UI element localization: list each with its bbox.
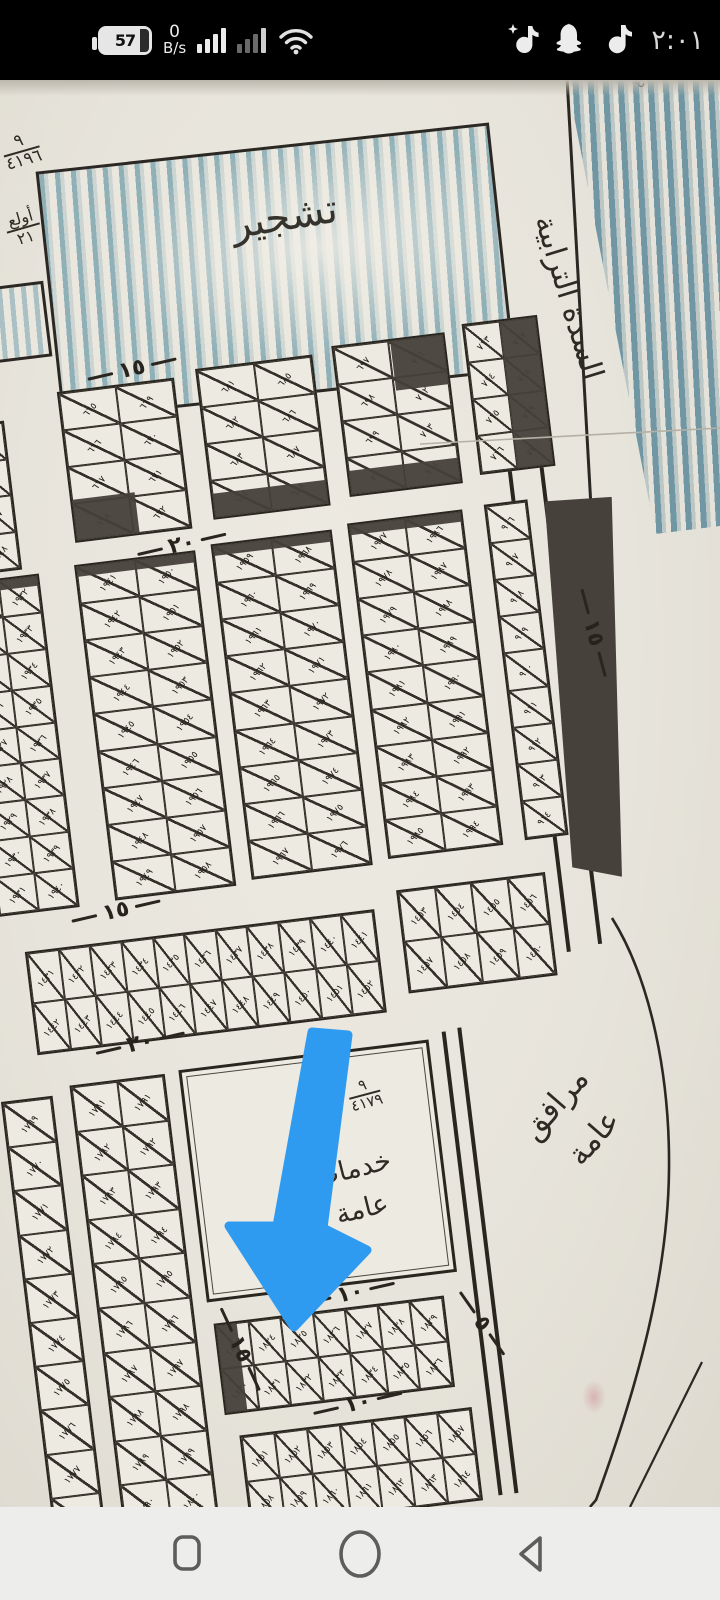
wifi-icon bbox=[277, 25, 315, 55]
plot-number: ١٩٥٩ bbox=[234, 551, 256, 574]
plot-cell: ١٤٦٠ bbox=[513, 924, 555, 978]
plot-cell: ١٧٧٠ bbox=[9, 1142, 62, 1192]
plot-cell: ١٩٣١ bbox=[0, 873, 39, 914]
plot-number: ٦٨٥ bbox=[275, 371, 293, 390]
plot-number: ٧١٦ bbox=[488, 444, 506, 463]
plot-number: ١٨٢٤ bbox=[256, 1332, 278, 1355]
plot-number: ١٧٨٢ bbox=[92, 1141, 114, 1164]
plot-number: ١٤٣٢ bbox=[67, 963, 89, 986]
plot-cell: ٩١٢ bbox=[513, 723, 557, 765]
plot-number: ١٤٥٤ bbox=[445, 901, 467, 924]
plot-number: ١٩٥١ bbox=[160, 601, 182, 624]
plot-number: ٦٨١ bbox=[219, 378, 237, 397]
plot-number: ١٩٨٦ bbox=[424, 524, 446, 547]
public-facilities-label: مرافق عامة bbox=[509, 1057, 641, 1187]
plot-number: ١٩٥٣ bbox=[169, 675, 191, 698]
plot-number: ١٤٥٢ bbox=[355, 978, 377, 1001]
plot-cell: ١٧٧١ bbox=[14, 1186, 67, 1236]
plot-number: ٦٦٧ bbox=[90, 474, 108, 493]
plot-cell: ١٨٥١ bbox=[242, 1433, 280, 1482]
plot-number: ١٧٨٤ bbox=[103, 1230, 125, 1253]
plot-number: ١٩٤٨ bbox=[129, 830, 151, 853]
plot-number: ١٩٧٨ bbox=[373, 567, 395, 590]
plot-number: ١٨٥٨ bbox=[255, 1493, 277, 1507]
dunam-note: أولع٢١ دونم٦ bbox=[0, 205, 44, 263]
plot-number: ١٨٢٦ bbox=[321, 1324, 343, 1347]
plot-number: ١٩٢٦ bbox=[0, 701, 6, 724]
plot-number: ١٩٤١ bbox=[97, 572, 119, 595]
battery-percent: 57 bbox=[115, 31, 135, 50]
plot-number: ٦٩٩ bbox=[363, 428, 381, 447]
plot-number: ٧١٣ bbox=[475, 334, 493, 353]
plot-cell: ١٧٧٤ bbox=[30, 1317, 83, 1367]
plot-number: ١٩٤٥ bbox=[115, 719, 137, 742]
plot-cell: ٩٠٦ bbox=[486, 502, 530, 544]
plot-block: ٦٦٥٦٦٩٦٦٦٦٧٠٦٦٧٦٧١٦٦٨٦٧٢ bbox=[57, 378, 193, 543]
street-dash bbox=[200, 532, 226, 541]
plot-block: ١٩٤١١٩٥٠١٩٤٢١٩٥١١٩٤٣١٩٥٢١٩٤٤١٩٥٣١٩٤٥١٩٥٤… bbox=[74, 550, 236, 900]
plot-cell: ١٧٨٣ bbox=[83, 1170, 134, 1220]
plot-number: ٦٨٧ bbox=[284, 444, 302, 463]
plot-number: ٦٦٥ bbox=[81, 401, 99, 420]
dark-filled-area bbox=[390, 335, 449, 391]
plot-cell: ١٩٩٤ bbox=[441, 806, 501, 850]
plot-number: ١٨٥٤ bbox=[348, 1436, 370, 1459]
plot-cell: ١٨٥٥ bbox=[372, 1417, 410, 1466]
plot-number: ١٩٧٤ bbox=[319, 765, 341, 788]
plot-number: ١٧٧٦ bbox=[57, 1420, 79, 1443]
plot-cell: ٩١٣ bbox=[518, 759, 562, 801]
battery-level-fill bbox=[140, 29, 149, 52]
plot-number: ١٩٣٣ bbox=[14, 623, 36, 646]
plot-number: ٧١٤ bbox=[479, 371, 497, 390]
street-width-value: ١٠ bbox=[334, 1278, 366, 1308]
street-dash bbox=[313, 1406, 339, 1415]
plot-number: ٦٧١ bbox=[146, 467, 164, 486]
plot-number: ١٤٥٠ bbox=[292, 986, 314, 1009]
plot-number: ٧٠٣ bbox=[418, 422, 436, 441]
plot-number: ١٨٣٤ bbox=[359, 1364, 381, 1387]
map-drawing-tilted: تشجير ٩ ٤١٩٦ مـ أولع٢١ دونم٦ ٤٤٢ السدة ا… bbox=[0, 80, 720, 1507]
plot-cell: ١٧٨٢ bbox=[77, 1126, 128, 1176]
plot-number: ٩١٠ bbox=[517, 662, 535, 681]
plot-cell: ١٩٣٥ bbox=[12, 686, 55, 727]
plot-number: ١٩٨٨ bbox=[433, 597, 455, 620]
plot-number: ١٩٦٢ bbox=[247, 661, 269, 684]
plot-number: ١٩٤٣ bbox=[106, 645, 128, 668]
plot-number: ١٩٢٧ bbox=[0, 738, 10, 761]
plot-number: ١٤٤١ bbox=[349, 929, 371, 952]
plot-number: ١٧٩٧ bbox=[165, 1357, 187, 1380]
plot-cell: ٩٠٧ bbox=[490, 538, 534, 580]
plot-number: ١٨٣٥ bbox=[391, 1360, 413, 1383]
phone-screen: 57 0 B/s bbox=[0, 0, 720, 1600]
plot-cell: ١٤٥٧ bbox=[404, 937, 446, 991]
plot-cell: ١٨٢٥ bbox=[280, 1314, 318, 1362]
plot-number: ١٧٩٥ bbox=[154, 1268, 176, 1291]
plot-cell: ١٧٧٦ bbox=[41, 1405, 94, 1455]
plot-cell: ١٧٩٤ bbox=[134, 1209, 185, 1259]
plot-number: ١٧٨١ bbox=[87, 1097, 109, 1120]
plot-cell: ١٤٤١ bbox=[341, 911, 378, 964]
plot-number: ١٧٨٩ bbox=[130, 1451, 152, 1474]
plot-number: ١٤٥١ bbox=[324, 982, 346, 1005]
street-width-value: ٢٠ bbox=[124, 1028, 156, 1058]
plot-number: ١٩٧٢ bbox=[310, 691, 332, 714]
plot-cell: ١٨٠٠ bbox=[166, 1475, 217, 1507]
plot-number: ١٨٥٦ bbox=[413, 1428, 435, 1451]
plot-cell: ١٩٣٧ bbox=[21, 759, 64, 800]
plot-cell: ١٧٧٢ bbox=[19, 1230, 72, 1280]
plot-number: ٦٧٠ bbox=[142, 430, 160, 449]
plot-number: ١٤٥٧ bbox=[415, 955, 437, 978]
plot-number: ١٩٧٥ bbox=[324, 802, 346, 825]
street-dash bbox=[369, 1281, 395, 1290]
plot-cell: ١٧٧٣ bbox=[25, 1273, 78, 1323]
plot-number: ٩٠٨ bbox=[508, 588, 526, 607]
street-dash bbox=[159, 1031, 185, 1040]
street-width-value: ١٥ bbox=[100, 896, 132, 926]
plot-cell: ١٧٩٧ bbox=[150, 1342, 201, 1392]
street-dash bbox=[96, 1046, 122, 1055]
plot-number: ١٩٣٥ bbox=[23, 696, 45, 719]
plot-number: ١٩٣١ bbox=[7, 884, 29, 907]
plot-cell: ١٧٩١ bbox=[117, 1076, 168, 1126]
street-dash bbox=[247, 1366, 261, 1391]
plot-cell: ١٤٥٣ bbox=[398, 888, 440, 942]
plot-cell: ١٩٧٦ bbox=[307, 826, 370, 870]
plot-cell: ١٩٣٩ bbox=[30, 832, 73, 873]
plot-number: ١٩٩١ bbox=[447, 708, 469, 731]
plot-cell: ١٧٨٩ bbox=[115, 1436, 166, 1486]
plot-number: ١٩٦٩ bbox=[297, 581, 319, 604]
plot-number: ١٩٨١ bbox=[387, 678, 409, 701]
plot-number: ١٩٩٢ bbox=[451, 745, 473, 768]
plot-number: ١٨٦٠ bbox=[321, 1485, 343, 1507]
plot-number: ١٨٦٢ bbox=[386, 1477, 408, 1500]
street-dash bbox=[151, 357, 177, 366]
plot-number: ١٧٧٥ bbox=[51, 1376, 73, 1399]
plot-block: ٦٩٧٧٠١٦٩٨٧٠٢٦٩٩٧٠٣٧٠٠٧٠٤ bbox=[331, 332, 463, 497]
plot-number: ١٩٨٤ bbox=[400, 788, 422, 811]
plot-number: ١٩٩٤ bbox=[460, 818, 482, 841]
plot-number: ١٩٤٠ bbox=[45, 879, 67, 902]
tiktok-lite-notification-icon bbox=[506, 22, 540, 58]
plot-number: ١٩٨٣ bbox=[396, 751, 418, 774]
plot-number: ١٨٣٣ bbox=[326, 1368, 348, 1391]
plot-number: ١٩٧٣ bbox=[315, 728, 337, 751]
plot-number: ١٨٦٣ bbox=[419, 1473, 441, 1496]
plot-cell: ١٩٣٦ bbox=[16, 722, 59, 763]
plot-number: ١٩٥٠ bbox=[156, 565, 178, 588]
plot-number: ١٤٣٩ bbox=[286, 936, 308, 959]
plot-cell: ١٤٥٥ bbox=[471, 879, 513, 933]
plot-number: ١٧٨٨ bbox=[125, 1407, 147, 1430]
plot-number: ١٤٤٣ bbox=[73, 1013, 95, 1036]
plot-number: ١٨٣٢ bbox=[294, 1371, 316, 1394]
plot-number: ١٩٦٥ bbox=[261, 772, 283, 795]
plot-cell: ٩١١ bbox=[509, 686, 553, 728]
plot-cell: ١٩٣٣ bbox=[3, 612, 46, 653]
plot-number: ١٩٧٧ bbox=[369, 530, 391, 553]
left-edge-block-stub bbox=[0, 281, 52, 365]
plot-number: ١٤٤٥ bbox=[135, 1005, 157, 1028]
plot-number: ٦٩٧ bbox=[354, 355, 372, 374]
plot-number: ٦٦٦ bbox=[85, 437, 103, 456]
plot-number: ١٨٦٤ bbox=[451, 1469, 473, 1492]
plot-number: ١٩٨٥ bbox=[405, 825, 427, 848]
plot-number: ١٩٢٥ bbox=[0, 664, 1, 687]
plot-number: ١٨٥٧ bbox=[446, 1424, 468, 1447]
plot-number: ١٧٨٣ bbox=[97, 1186, 119, 1209]
street-dash bbox=[71, 914, 97, 923]
snapchat-notification-icon bbox=[553, 22, 589, 58]
plot-number: ١٤٤٢ bbox=[41, 1017, 63, 1040]
plot-number: ١٨٥١ bbox=[250, 1448, 272, 1471]
recents-button[interactable] bbox=[167, 1531, 207, 1577]
plot-cell: ١٧٩٥ bbox=[139, 1253, 190, 1303]
plot-number: ١٩٣٢ bbox=[9, 586, 31, 609]
plot-cell: ١٧٩٠ bbox=[121, 1480, 172, 1507]
plot-cell: ١٨٥٣ bbox=[307, 1425, 345, 1474]
plot-number: ٦٩٨ bbox=[359, 392, 377, 411]
plot-number: ١٩٣٨ bbox=[36, 806, 58, 829]
plot-cell: ١٧٩٩ bbox=[161, 1430, 212, 1480]
plot-cell: ١٧٨١ bbox=[72, 1082, 123, 1132]
plot-number: ١٩٤٤ bbox=[111, 682, 133, 705]
plot-number: ١٩٣٩ bbox=[41, 843, 63, 866]
plot-cell: ١٨٦٤ bbox=[443, 1454, 481, 1503]
plot-number: ١٤٣١ bbox=[35, 967, 57, 990]
plot-number: ٩١٤ bbox=[535, 809, 553, 828]
plot-number: ١٧٩٨ bbox=[170, 1401, 192, 1424]
plot-number: ١٩٥٥ bbox=[178, 749, 200, 772]
plot-number: ١٩٤٧ bbox=[124, 793, 146, 816]
plot-number: ١٩٤٦ bbox=[120, 756, 142, 779]
plot-number: ١٨٢٩ bbox=[418, 1312, 440, 1335]
plot-cell: ٧١٣ bbox=[464, 321, 504, 362]
status-left-cluster: 57 0 B/s bbox=[98, 24, 315, 56]
plot-cell: ١٧٨٨ bbox=[110, 1392, 161, 1442]
plot-number: ١٧٧٧ bbox=[62, 1464, 84, 1487]
street-dash bbox=[219, 1307, 233, 1332]
plot-number: ١٩٥٦ bbox=[183, 786, 205, 809]
plot-number: ٩١١ bbox=[522, 699, 540, 718]
plot-number: ١٩٨٠ bbox=[382, 641, 404, 664]
plot-cell: ١٧٧٧ bbox=[46, 1449, 99, 1499]
plot-number: ١٩٤٩ bbox=[133, 866, 155, 889]
plot-cell: ١٨٥٧ bbox=[437, 1409, 475, 1458]
plot-number: ٦٤٦ bbox=[0, 471, 1, 490]
plot-cell: ١٨٢٨ bbox=[377, 1302, 415, 1350]
signal-bars-sim1-icon bbox=[197, 27, 226, 53]
afforestation-label: تشجير bbox=[228, 186, 341, 248]
plot-fraction-top: ٩ ٤١٩٦ bbox=[0, 128, 44, 174]
plot-cell: ١٧٨٥ bbox=[93, 1259, 144, 1309]
plot-number: ١٤٣٧ bbox=[224, 944, 246, 967]
plot-cell: ١٧٦٩ bbox=[3, 1098, 56, 1148]
plot-number: ٦٤٧ bbox=[0, 508, 5, 527]
plot-number: ١٩٥٢ bbox=[165, 638, 187, 661]
plot-number: ١٧٩٠ bbox=[135, 1495, 157, 1507]
plot-number: ١٩٩٣ bbox=[456, 781, 478, 804]
plot-number: ٦٤٨ bbox=[0, 544, 10, 563]
plot-number: ١٤٣٥ bbox=[161, 952, 183, 975]
plot-number: ١٩٦٦ bbox=[265, 809, 287, 832]
plot-cell: ١٨٥٢ bbox=[274, 1429, 312, 1478]
plot-number: ١٤٤٤ bbox=[104, 1009, 126, 1032]
plot-cell: ٩١٠ bbox=[504, 649, 548, 691]
plot-number: ١٩٢٩ bbox=[0, 811, 19, 834]
plot-number: ١٨٥٥ bbox=[380, 1432, 402, 1455]
plot-cell: ١٨٥٤ bbox=[339, 1421, 377, 1470]
street-dash bbox=[134, 899, 160, 908]
plot-cell: ٧١٥ bbox=[473, 395, 513, 436]
plot-cell: ١٤٥٢ bbox=[347, 961, 384, 1014]
plot-block: ١٨٥١١٨٥٢١٨٥٣١٨٥٤١٨٥٥١٨٥٦١٨٥٧١٨٥٨١٨٥٩١٨٦٠… bbox=[239, 1407, 483, 1507]
plot-cell: ٧١٦ bbox=[477, 432, 517, 473]
plot-number: ١٧٩١ bbox=[132, 1091, 154, 1114]
plot-cell: ١٩٨٥ bbox=[385, 813, 445, 857]
plot-cell: ١٨٢٦ bbox=[313, 1310, 351, 1358]
plot-number: ١٨٠٠ bbox=[181, 1490, 203, 1507]
plot-number: ١٤٥٨ bbox=[451, 950, 473, 973]
street-dash bbox=[137, 547, 163, 556]
plot-cell: ٦٤٧ bbox=[0, 495, 16, 535]
plot-number: ١٤٤٩ bbox=[261, 990, 283, 1013]
plot-block: ٦٨١٦٨٥٦٨٢٦٨٦٦٨٣٦٨٧٦٨٤٦٨٨ bbox=[195, 355, 331, 520]
plot-cell: ١٨٦٣ bbox=[410, 1458, 448, 1507]
plot-number: ١٩٧١ bbox=[306, 654, 328, 677]
signal-bars-sim2-icon bbox=[237, 27, 266, 53]
plot-cell: ١٧٨٦ bbox=[99, 1303, 150, 1353]
back-button[interactable] bbox=[511, 1531, 555, 1577]
street-dash bbox=[376, 1391, 402, 1400]
plot-cell: ١٨٢٩ bbox=[410, 1298, 448, 1346]
plot-block: ١٩٢٣١٩٣٢١٩٢٤١٩٣٣١٩٢٥١٩٣٤١٩٢٦١٩٣٥١٩٢٧١٩٣٦… bbox=[0, 574, 80, 917]
plot-number: ١٨٥٢ bbox=[283, 1444, 305, 1467]
plot-cell: ٧١٤ bbox=[468, 358, 508, 399]
plot-number: ١٩٦١ bbox=[243, 625, 265, 648]
plot-cell: ١٤٥٩ bbox=[477, 928, 519, 982]
plot-number: ١٧٩٢ bbox=[138, 1136, 160, 1159]
plot-number: ١٩٧٩ bbox=[378, 604, 400, 627]
plot-number: ١٧٩٦ bbox=[159, 1313, 181, 1336]
plot-number: ١٩٤٢ bbox=[102, 609, 124, 632]
street-dash bbox=[87, 372, 113, 381]
plot-cell: ٦٤٥ bbox=[0, 423, 7, 463]
plot-number: ١٤٣٨ bbox=[255, 940, 277, 963]
status-bar: 57 0 B/s bbox=[0, 0, 720, 80]
plot-number: ١٩٦٨ bbox=[292, 544, 314, 567]
plot-number: ١٤٤٠ bbox=[318, 933, 340, 956]
plot-number: ١٧٧١ bbox=[30, 1201, 52, 1224]
plot-cell: ١٧٧٥ bbox=[35, 1361, 88, 1411]
plot-cell: ١٩٣٨ bbox=[25, 795, 68, 836]
plot-number: ١٤٣٦ bbox=[192, 948, 214, 971]
plot-number: ١٨٦١ bbox=[353, 1481, 375, 1504]
plot-cell: ١٤٥٤ bbox=[435, 883, 477, 937]
plot-cell: ١٧٩٦ bbox=[144, 1297, 195, 1347]
plot-cell: ١٨٦٢ bbox=[377, 1462, 415, 1507]
plot-cell: ١٨٢٧ bbox=[345, 1306, 383, 1354]
plot-number: ٦٦٩ bbox=[137, 394, 155, 413]
plot-number: ١٩٢٨ bbox=[0, 774, 15, 797]
plot-number: ١٧٩٩ bbox=[176, 1446, 198, 1469]
plot-number: ١٤٣٣ bbox=[98, 960, 120, 983]
plot-cell: ١٨٥٦ bbox=[405, 1413, 443, 1462]
street-width-value: ١٠ bbox=[342, 1388, 374, 1418]
home-button[interactable] bbox=[336, 1527, 384, 1581]
plot-cell: ١٩٣٠ bbox=[0, 837, 34, 878]
plot-number: ١٨٢٧ bbox=[353, 1320, 375, 1343]
plot-block: ١٩٧٧١٩٨٦١٩٧٨١٩٨٧١٩٧٩١٩٨٨١٩٨٠١٩٨٩١٩٨١١٩٩٠… bbox=[347, 509, 503, 859]
plot-number: ١٩٦٣ bbox=[252, 698, 274, 721]
plot-number: ٩٠٧ bbox=[504, 551, 522, 570]
plot-cell: ٩١٤ bbox=[522, 796, 566, 838]
plot-number: ٦٧٢ bbox=[151, 504, 169, 523]
plot-cell: ١٨٦١ bbox=[345, 1466, 383, 1507]
plot-number: ١٤٥٩ bbox=[487, 946, 509, 969]
plot-number: ١٩٧٦ bbox=[328, 838, 350, 861]
plot-number: ٩١٣ bbox=[531, 772, 549, 791]
plot-number: ١٧٧٤ bbox=[46, 1333, 68, 1356]
plot-number: ٦٨٢ bbox=[223, 414, 241, 433]
plot-number: ١٨٢٨ bbox=[386, 1316, 408, 1339]
plot-number: ١٩٦٤ bbox=[256, 735, 278, 758]
plot-number: ١٧٩٣ bbox=[143, 1180, 165, 1203]
plot-number: ١٩٩٠ bbox=[442, 671, 464, 694]
network-speed: 0 B/s bbox=[163, 24, 186, 56]
plot-number: ١٤٥٦ bbox=[518, 892, 540, 915]
plot-cell: ١٤٥٦ bbox=[507, 874, 549, 928]
plot-number: ١٧٧٣ bbox=[41, 1289, 63, 1312]
plot-number: ١٤٣٤ bbox=[129, 956, 151, 979]
plot-number: ١٤٤٧ bbox=[198, 998, 220, 1021]
network-speed-unit: B/s bbox=[163, 39, 186, 57]
street-dash bbox=[306, 1296, 332, 1305]
plot-number: ١٧٨٦ bbox=[114, 1318, 136, 1341]
plot-number: ١٩٣٠ bbox=[2, 848, 24, 871]
dark-filled-area bbox=[72, 492, 139, 541]
plot-block: ١٤٥٣١٤٥٤١٤٥٥١٤٥٦١٤٥٧١٤٥٨١٤٥٩١٤٦٠ bbox=[396, 872, 558, 994]
map-photo: تشجير ٩ ٤١٩٦ مـ أولع٢١ دونم٦ ٤٤٢ السدة ا… bbox=[0, 80, 720, 1507]
plot-cell: ١٧٩٨ bbox=[155, 1386, 206, 1436]
plot-number: ١٤٥٥ bbox=[481, 896, 503, 919]
plot-number: ١٩٣٧ bbox=[32, 770, 54, 793]
plot-cell: ٩٠٩ bbox=[500, 612, 544, 654]
plot-number: ١٤٥٣ bbox=[409, 905, 431, 928]
plot-cell: ١٨٣٢ bbox=[286, 1357, 324, 1405]
pink-smudge bbox=[582, 1380, 606, 1414]
plot-cell: ١٧٩٢ bbox=[123, 1120, 174, 1170]
battery-icon: 57 bbox=[98, 26, 152, 55]
plot-block: ٧١٣٧١٧٧١٤٧١٨٧١٥٧١٩٧١٦٧٢٠ bbox=[462, 315, 556, 475]
navigation-bar bbox=[0, 1507, 720, 1600]
plot-cell: ١٧٨٧ bbox=[104, 1347, 155, 1397]
plot-number: ١٩٨٧ bbox=[429, 560, 451, 583]
clock: ٢:٠١ bbox=[651, 25, 704, 56]
plot-number: ١٩٥٧ bbox=[187, 822, 209, 845]
plot-number: ٩٠٩ bbox=[513, 625, 531, 644]
plot-cell: ١٧٩٣ bbox=[128, 1165, 179, 1215]
plot-number: ١٨٢٥ bbox=[289, 1328, 311, 1351]
plot-number: ١٨٥٩ bbox=[288, 1489, 310, 1507]
plot-cell: ٩٠٨ bbox=[495, 575, 539, 617]
plot-number: ٩٠٦ bbox=[499, 514, 517, 533]
plot-number: ١٧٩٤ bbox=[149, 1224, 171, 1247]
battery-terminal bbox=[92, 37, 97, 50]
